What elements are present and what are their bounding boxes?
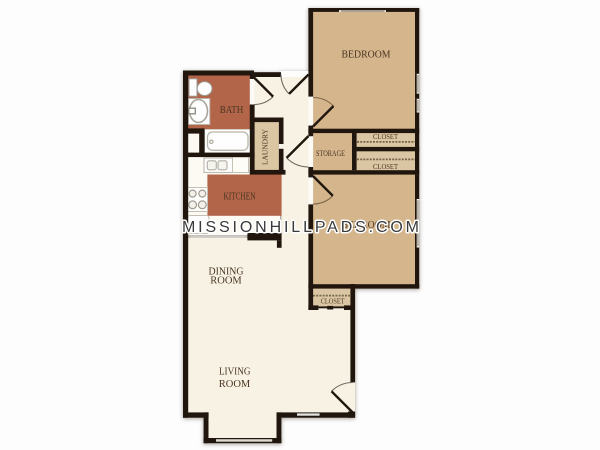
svg-text:KITCHEN: KITCHEN [224,191,256,203]
svg-text:BATH: BATH [220,104,244,116]
svg-text:STORAGE: STORAGE [316,148,345,158]
svg-text:CLOSET: CLOSET [373,132,398,141]
svg-text:LAUNDRY: LAUNDRY [261,129,269,165]
svg-text:ROOM: ROOM [210,276,242,287]
svg-text:CLOSET: CLOSET [321,297,345,306]
svg-text:CLOSET: CLOSET [373,162,398,171]
svg-text:BEDROOM: BEDROOM [342,49,391,61]
svg-text:LIVING: LIVING [219,366,251,377]
svg-text:ROOM: ROOM [219,379,251,390]
